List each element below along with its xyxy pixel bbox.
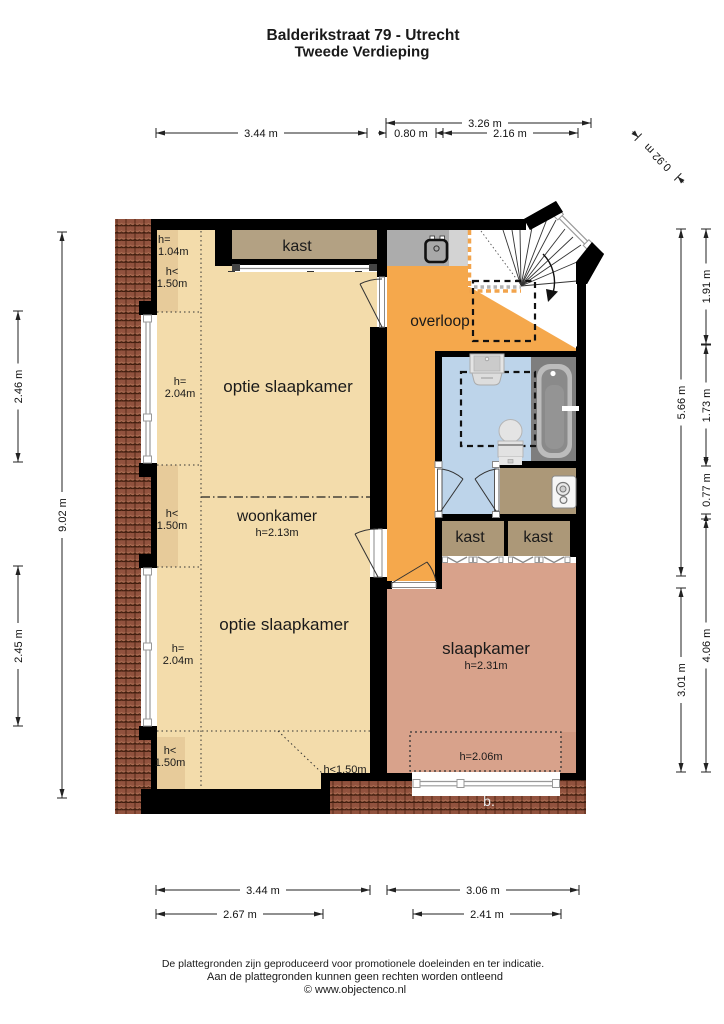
svg-text:3.06 m: 3.06 m [466,885,500,897]
svg-text:5.66 m: 5.66 m [676,386,688,420]
svg-text:h<: h< [166,266,179,278]
svg-text:kast: kast [455,529,485,546]
svg-text:h<: h< [166,508,179,520]
svg-text:h=: h= [158,234,171,246]
svg-text:Aan de plattegronden kunnen ge: Aan de plattegronden kunnen geen rechten… [207,971,503,983]
svg-text:h=2.31m: h=2.31m [464,660,507,672]
svg-text:0.80 m: 0.80 m [394,128,428,140]
svg-text:© www.objectenco.nl: © www.objectenco.nl [304,984,406,996]
svg-text:slaapkamer: slaapkamer [442,639,530,658]
svg-text:2.04m: 2.04m [163,655,194,667]
svg-text:1.50m: 1.50m [157,520,188,532]
svg-text:2.46 m: 2.46 m [13,370,25,404]
svg-text:4.06 m: 4.06 m [701,629,713,663]
svg-text:kast: kast [282,238,312,255]
svg-text:h<1.50m: h<1.50m [323,764,366,776]
svg-text:h=2.13m: h=2.13m [255,527,298,539]
svg-text:2.16 m: 2.16 m [493,128,527,140]
svg-text:kast: kast [523,529,553,546]
svg-text:2.04m: 2.04m [165,388,196,400]
svg-text:Tweede Verdieping: Tweede Verdieping [295,44,430,61]
svg-text:De plattegronden zijn geproduc: De plattegronden zijn geproduceerd voor … [162,958,544,970]
svg-text:1.73 m: 1.73 m [701,389,713,423]
svg-text:h=: h= [174,376,187,388]
svg-text:3.44 m: 3.44 m [246,885,280,897]
svg-text:Balderikstraat 79 - Utrecht: Balderikstraat 79 - Utrecht [267,27,460,44]
svg-text:3.44 m: 3.44 m [244,128,278,140]
svg-text:3.01 m: 3.01 m [676,663,688,697]
svg-text:1.50m: 1.50m [155,757,186,769]
svg-text:h<: h< [164,745,177,757]
svg-text:h=: h= [172,643,185,655]
svg-text:9.02 m: 9.02 m [57,498,69,532]
svg-text:b.: b. [483,793,495,809]
svg-text:2.67 m: 2.67 m [223,909,257,921]
svg-text:overloop: overloop [410,313,469,330]
svg-text:h=2.06m: h=2.06m [459,751,502,763]
svg-text:2.41 m: 2.41 m [470,909,504,921]
svg-text:1.50m: 1.50m [157,278,188,290]
svg-text:2.45 m: 2.45 m [13,629,25,663]
svg-text:1.91 m: 1.91 m [701,270,713,304]
svg-text:1.04m: 1.04m [158,246,189,258]
svg-text:woonkamer: woonkamer [236,508,317,525]
svg-text:optie slaapkamer: optie slaapkamer [219,615,349,634]
svg-text:0.77 m: 0.77 m [701,473,713,507]
svg-text:optie slaapkamer: optie slaapkamer [223,377,353,396]
